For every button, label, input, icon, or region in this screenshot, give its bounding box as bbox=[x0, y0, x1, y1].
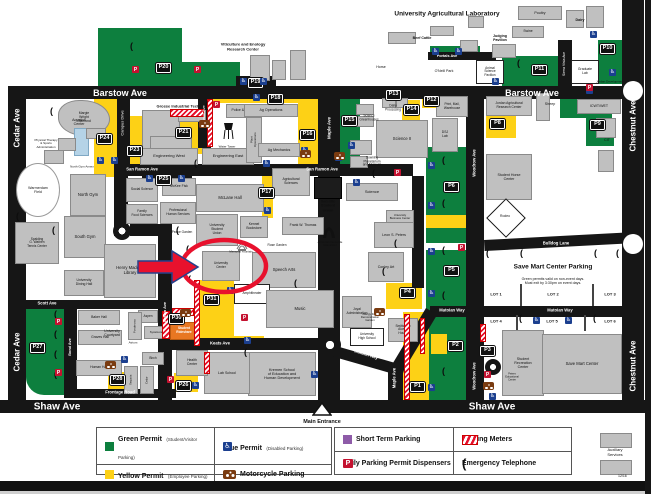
emergency-telephone-icon: ( bbox=[442, 200, 445, 207]
label-water-tower: Water Tower bbox=[219, 145, 236, 148]
label-beef-cattle: Beef Cattle bbox=[413, 36, 432, 40]
roundabout bbox=[319, 334, 341, 356]
lot-badge-P28: P28 bbox=[110, 375, 125, 385]
label-san-ramon-ave: San Ramon Ave bbox=[306, 168, 338, 173]
disabled-parking-icon: ♿ bbox=[428, 202, 435, 209]
lot-badge-P3: P3 bbox=[480, 346, 495, 356]
lot-badge-P15: P15 bbox=[342, 116, 357, 126]
building-family-food-sciences: Family Food Sciences bbox=[126, 204, 158, 224]
permit-dispenser-icon: P bbox=[241, 314, 248, 321]
emergency-telephone-icon: ( bbox=[593, 315, 596, 322]
emergency-telephone-icon: ( bbox=[442, 292, 445, 299]
building-print-mail-warehouse: Print, Mail, Warehouse bbox=[436, 96, 468, 117]
lot-divider bbox=[516, 315, 518, 331]
legend-label: Short Term Parking bbox=[356, 436, 420, 443]
emergency-telephone-icon: ( bbox=[176, 227, 179, 234]
motorcycle-icon bbox=[223, 470, 236, 479]
entrance-triangle-icon bbox=[312, 402, 332, 421]
building-music: Music bbox=[266, 290, 334, 328]
building-south-gym: South Gym bbox=[64, 216, 106, 258]
lot-badge-P31: P31 bbox=[204, 295, 219, 305]
building-dsj-lab: DSJ Lab bbox=[432, 118, 458, 152]
emergency-telephone-icon: ( bbox=[186, 246, 189, 253]
emergency-telephone-icon: ( bbox=[594, 250, 597, 257]
lot-area-p20-upper bbox=[98, 28, 182, 62]
label-matoian-way: Matoian Way bbox=[547, 309, 572, 314]
label-science-greenhouses: Science Greenhouses bbox=[359, 114, 378, 121]
building-science-ii: Science II bbox=[376, 120, 428, 158]
disabled-parking-icon: ♿ bbox=[121, 356, 128, 363]
disabled-parking-icon: ♿ bbox=[244, 337, 251, 344]
building-henry-madden-library: Henry Madden Library bbox=[104, 244, 156, 298]
label-woodrow-ave: Woodrow Ave bbox=[473, 362, 478, 390]
fountain-icon bbox=[236, 240, 248, 258]
label-peace-garden: Peace Garden bbox=[172, 231, 193, 235]
street-loop-stub bbox=[130, 224, 164, 236]
label-campus-drive: Campus Drive bbox=[121, 110, 126, 135]
label-satellite-student-union: Satellite Student Union bbox=[321, 199, 336, 212]
building-amphitheater: Amphitheater bbox=[234, 284, 270, 304]
lot-badge-P2: P2 bbox=[448, 341, 463, 351]
emergency-telephone-icon: ( bbox=[194, 160, 197, 167]
building-lab-school: Lab School bbox=[204, 352, 250, 394]
label-lot-5: LOT 5 bbox=[546, 320, 557, 325]
label-lot-2: LOT 2 bbox=[547, 293, 558, 298]
disabled-parking-icon: ♿ bbox=[432, 48, 439, 55]
watertower-icon bbox=[222, 122, 235, 145]
label-rose-garden: Rose Garden bbox=[268, 244, 287, 248]
disabled-parking-icon: ♿ bbox=[565, 317, 572, 324]
permit-dispenser-icon: P bbox=[394, 169, 401, 176]
lot-badge-P20: P20 bbox=[156, 63, 171, 73]
legend-label: Emergency Telephone bbox=[462, 460, 536, 467]
label-bulldog-lane: Bulldog Lane bbox=[543, 242, 570, 247]
parking-meters-stripe bbox=[170, 109, 204, 117]
lot-badge-P6: P6 bbox=[444, 182, 459, 192]
auxiliary-services-building bbox=[600, 433, 632, 448]
roundabout-circle bbox=[623, 81, 643, 101]
lot-badge-P10: P10 bbox=[600, 44, 615, 54]
label-shaw-ave: Shaw Ave bbox=[34, 401, 81, 413]
disabled-parking-icon: ♿ bbox=[97, 157, 104, 164]
building-ponderosa: Ponderosa bbox=[128, 312, 142, 340]
yellow-permit-swatch bbox=[105, 470, 114, 479]
emergency-telephone-icon: ( bbox=[517, 60, 520, 67]
parking-meters-icon bbox=[462, 435, 478, 445]
legend-daily-dispensers: P Daily Parking Permit Dispensers bbox=[335, 451, 453, 474]
emergency-telephone-icon: ( bbox=[52, 227, 55, 234]
label-sierra-vista-ave: Sierra Vista Ave bbox=[563, 52, 567, 76]
permit-dispenser-icon: P bbox=[55, 318, 62, 325]
label-physical-therapy-sports-administration: Physical Therapy & Sports Administration bbox=[35, 139, 58, 149]
lot-badge-P18: P18 bbox=[268, 94, 283, 104]
emergency-telephone-icon: ( bbox=[16, 213, 19, 220]
disabled-parking-icon: ♿ bbox=[455, 48, 462, 55]
building-baker-hall: Baker Hall bbox=[78, 310, 120, 325]
emergency-telephone-icon: ( bbox=[442, 157, 445, 164]
emergency-telephone-icon: ( bbox=[130, 43, 133, 50]
motorcycle-parking-icon bbox=[180, 309, 191, 317]
building-ag-mechanics: Ag Mechanics bbox=[258, 143, 300, 157]
legend-label: Yellow Permit bbox=[118, 473, 164, 480]
lot-badge-P23: P23 bbox=[127, 146, 142, 156]
label-scott-ave: Scott Ave bbox=[37, 302, 56, 307]
lot-badge-P24: P24 bbox=[97, 134, 112, 144]
label-bond-ave: Bond Ave bbox=[68, 338, 72, 355]
label-barstow-ave: Barstow Ave bbox=[93, 88, 147, 98]
emergency-telephone-icon: ( bbox=[520, 250, 523, 257]
building-graduate-lab: Graduate Lab bbox=[571, 60, 599, 84]
emergency-telephone-icon: ( bbox=[294, 280, 297, 287]
label-sheep: Sheep bbox=[545, 102, 555, 106]
emergency-telephone-icon: ( bbox=[519, 315, 522, 322]
building bbox=[430, 26, 454, 36]
building bbox=[492, 44, 516, 58]
lot-badge-P21: P21 bbox=[176, 128, 191, 138]
legend-green-permit: Green Permit (Student/Visitor Parking) bbox=[97, 428, 214, 464]
label-lot-6: LOT 6 bbox=[604, 320, 615, 325]
label-matoian-way: Matoian Way bbox=[439, 309, 464, 314]
label-viticulture-and-enology-research-center: Viticulture and Enology Research Center bbox=[221, 42, 266, 51]
disabled-parking-icon: ♿ bbox=[348, 142, 355, 149]
lot-badge-P27: P27 bbox=[30, 343, 45, 353]
disabled-parking-icon: ♿ bbox=[263, 160, 270, 167]
building-ag-operations: Ag Operations bbox=[244, 104, 298, 117]
label-san-ramon-ave: San Ramon Ave bbox=[126, 168, 158, 173]
building-poultry: Poultry bbox=[518, 6, 562, 20]
motorcycle-parking-icon bbox=[199, 120, 210, 128]
emergency-telephone-icon: ( bbox=[462, 460, 466, 467]
building-save-mart-center: Save Mart Center bbox=[542, 334, 622, 394]
lot-badge-P17: P17 bbox=[259, 188, 274, 198]
emergency-telephone-icon: ( bbox=[442, 247, 445, 254]
building-north-gym: North Gym bbox=[70, 174, 106, 216]
legend-parking-meters: Parking Meters bbox=[453, 428, 571, 451]
building-university-dining-hall: University Dining Hall bbox=[64, 270, 104, 296]
label-judging-pavilion: Judging Pavilion bbox=[493, 34, 507, 42]
emergency-telephone-icon: ( bbox=[54, 331, 57, 338]
permit-dispenser-icon: P bbox=[194, 66, 201, 73]
label-barton-ave: Barton Ave bbox=[163, 302, 167, 322]
disabled-parking-icon: ♿ bbox=[240, 78, 247, 85]
disabled-parking-icon: ♿ bbox=[264, 207, 271, 214]
label-chestnut-ave: Chestnut Ave bbox=[628, 341, 637, 392]
permit-dispenser-icon: P bbox=[458, 244, 465, 251]
lot-area-column-band-3 bbox=[431, 334, 447, 354]
building-university-high-school: University High School bbox=[350, 328, 384, 346]
building-swine: Swine bbox=[512, 26, 544, 38]
building-speech-arts: Speech Arts bbox=[252, 252, 316, 288]
label-downing-planetarium-and-museum: Downing Planetarium and Museum bbox=[363, 156, 381, 167]
permit-dispenser-icon: P bbox=[586, 84, 593, 91]
emergency-telephone-icon: ( bbox=[442, 368, 445, 375]
label-chestnut-ave: Chestnut Ave bbox=[628, 101, 637, 152]
label-jordan-development: Jordan Development bbox=[596, 80, 624, 83]
building-student-recreation-center: Student Recreation Center bbox=[502, 330, 544, 396]
label-dairy-processing: Dairy Processing bbox=[385, 104, 401, 111]
building-kremen-school-of-education-and-human-devel: Kremen School of Education and Human Dev… bbox=[248, 352, 316, 396]
legend-emergency-telephone: ( Emergency Telephone bbox=[453, 451, 571, 474]
disabled-parking-icon: ♿ bbox=[609, 69, 616, 76]
motorcycle-parking-icon bbox=[300, 150, 311, 158]
disabled-parking-icon: ♿ bbox=[146, 175, 153, 182]
disabled-parking-icon: ♿ bbox=[353, 179, 360, 186]
label-frontage-road: Frontage Road bbox=[105, 391, 135, 396]
short-term-swatch bbox=[343, 435, 352, 444]
emergency-telephone-icon: ( bbox=[616, 250, 619, 257]
bottom-bar bbox=[0, 481, 651, 491]
legend-short-term: Short Term Parking bbox=[335, 428, 453, 451]
building-professional-human-services: Professional Human Services bbox=[160, 202, 196, 224]
label-maple-ave: Maple Ave bbox=[326, 117, 331, 139]
building-jordan-agricultural-research-center: Jordan Agricultural Research Center bbox=[486, 96, 532, 116]
legend-blue-permit: ♿ Blue Permit (Disabled Parking) bbox=[214, 428, 331, 464]
legend-box-other: Short Term Parking Parking Meters P Dail… bbox=[334, 427, 572, 475]
auxiliary-services-building-2 bbox=[600, 460, 632, 475]
dispenser-icon: P bbox=[343, 459, 353, 468]
motorcycle-parking-icon bbox=[105, 361, 116, 369]
building bbox=[272, 60, 286, 80]
label-lot-1: LOT 1 bbox=[490, 293, 501, 298]
lot-badge-P14: P14 bbox=[404, 105, 419, 115]
lot-badge-P5: P5 bbox=[444, 266, 459, 276]
label-rodeo: Rodeo bbox=[500, 215, 510, 219]
emergency-telephone-icon: ( bbox=[54, 311, 57, 318]
permit-dispenser-icon: P bbox=[167, 376, 174, 383]
lot-badge-P26: P26 bbox=[176, 381, 191, 391]
building-animal-science-pavilion: Animal Science Pavilion bbox=[476, 60, 504, 84]
lot-badge-P13: P13 bbox=[386, 90, 401, 100]
building-university-center: University Center bbox=[202, 251, 240, 281]
label-green-permits-valid-on-non-event-days-must: Green permits valid on non-event days. M… bbox=[522, 277, 585, 285]
label-university-agricultural-laboratory: University Agricultural Laboratory bbox=[394, 10, 499, 17]
parking-meters-stripe bbox=[420, 318, 425, 354]
permit-dispenser-icon: P bbox=[213, 101, 220, 108]
legend-sublabel: (Employee Parking) bbox=[168, 474, 208, 479]
disabled-parking-icon: ♿ bbox=[428, 162, 435, 169]
lot-badge-P25: P25 bbox=[156, 175, 171, 185]
motorcycle-parking-icon bbox=[374, 308, 385, 316]
auxiliary-services-label: Auxiliary Services bbox=[600, 448, 630, 457]
disabled-parking-icon: ♿ bbox=[223, 442, 232, 451]
building-warmerdam-field: Warmerdam Field bbox=[16, 163, 60, 217]
permit-dispenser-icon: P bbox=[55, 369, 62, 376]
emergency-telephone-icon: ( bbox=[205, 102, 208, 109]
building bbox=[314, 177, 342, 199]
map-date: 12/16 bbox=[618, 474, 627, 478]
building bbox=[460, 40, 478, 52]
disabled-parking-icon: ♿ bbox=[428, 248, 435, 255]
building-kennel-bookstore: Kennel Bookstore bbox=[240, 216, 268, 238]
disabled-parking-icon: ♿ bbox=[178, 175, 185, 182]
label-grosse-industrial-tech: Grosse Industrial Tech bbox=[156, 105, 199, 110]
building-engineering-west: Engineering West bbox=[140, 148, 198, 165]
label-shaw-ave: Shaw Ave bbox=[469, 401, 516, 413]
building-agricultural-sciences: Agricultural Sciences bbox=[272, 168, 310, 196]
disabled-parking-icon: ♿ bbox=[260, 78, 267, 85]
roundabout-circle bbox=[623, 234, 643, 254]
disabled-parking-icon: ♿ bbox=[590, 31, 597, 38]
motorcycle-parking-icon bbox=[483, 382, 494, 390]
lot-divider bbox=[520, 284, 522, 306]
lot-divider bbox=[584, 315, 586, 331]
label-lot-4: LOT 4 bbox=[490, 320, 501, 325]
legend-box-permits: Green Permit (Student/Visitor Parking) ♿… bbox=[96, 427, 332, 475]
building-frank-w-thomas: Frank W. Thomas bbox=[282, 217, 324, 235]
label-barstow-ave: Barstow Ave bbox=[505, 88, 559, 98]
emergency-telephone-icon: ( bbox=[244, 349, 247, 356]
label-peters-educational-center: Peters Educational Center bbox=[505, 374, 519, 383]
label-north-gym-annex: North Gym Annex bbox=[70, 165, 94, 168]
emergency-telephone-icon: ( bbox=[486, 250, 489, 257]
emergency-telephone-icon: ( bbox=[54, 351, 57, 358]
building-smittcamp-alumni-house: Smittcamp Alumni House bbox=[388, 318, 418, 342]
disabled-parking-icon: ♿ bbox=[492, 78, 499, 85]
building bbox=[598, 150, 614, 172]
campus-map: Margie Wright DiamondNorth GymSouth GymS… bbox=[0, 0, 651, 494]
parking-meters-stripe bbox=[204, 352, 210, 374]
disabled-parking-icon: ♿ bbox=[227, 287, 234, 294]
legend: FRESNO STATE Discovery. Diversity. Disti… bbox=[0, 418, 651, 481]
lot-badge-P4: P4 bbox=[400, 288, 415, 298]
building-student-horse-center: Student Horse Center bbox=[486, 154, 532, 200]
label-cit: CIT bbox=[604, 138, 610, 142]
lot-badge-P1: P1 bbox=[410, 382, 425, 392]
lot-divider bbox=[592, 284, 594, 306]
emergency-telephone-icon: ( bbox=[188, 276, 191, 283]
building bbox=[290, 50, 306, 80]
legend-label: Motorcycle Parking bbox=[240, 471, 305, 478]
building-mclane-hall: McLane Hall bbox=[196, 184, 264, 212]
legend-label: Daily Parking Permit Dispensers bbox=[343, 460, 451, 467]
parking-meters-stripe bbox=[480, 324, 486, 342]
lot-badge-P9: P9 bbox=[590, 120, 605, 130]
label-atrium: Atrium bbox=[129, 341, 138, 344]
building-conley-art: Conley Art bbox=[368, 252, 404, 282]
permit-dispenser-icon: P bbox=[132, 66, 139, 73]
label-woodrow-ave: Woodrow Ave bbox=[473, 149, 478, 177]
building-social-science: Social Science bbox=[126, 178, 158, 202]
disabled-parking-icon: ♿ bbox=[311, 371, 318, 378]
parking-meters-stripe bbox=[194, 280, 200, 346]
legend-label: Green Permit bbox=[118, 436, 162, 443]
lot-badge-P11: P11 bbox=[532, 65, 547, 75]
disabled-parking-icon: ♿ bbox=[533, 317, 540, 324]
label-o-neill-park: O'Neill Park bbox=[435, 69, 454, 73]
roundabout bbox=[113, 222, 131, 240]
motorcycle-parking-icon bbox=[334, 152, 345, 160]
building-icwt-wet: ICWT/WET bbox=[577, 99, 621, 114]
label-cedar-ave: Cedar Ave bbox=[12, 333, 21, 372]
building bbox=[44, 150, 64, 164]
building-cedar: Cedar bbox=[140, 366, 154, 394]
label-save-mart-center-parking: Save Mart Center Parking bbox=[514, 263, 593, 270]
building bbox=[586, 6, 604, 28]
emergency-telephone-icon: ( bbox=[382, 268, 385, 275]
label-cedar-ave: Cedar Ave bbox=[12, 109, 21, 148]
label-horse: Horse bbox=[376, 65, 386, 69]
legend-sublabel: (Disabled Parking) bbox=[266, 446, 303, 451]
disabled-parking-icon: ♿ bbox=[428, 384, 435, 391]
emergency-telephone-icon: ( bbox=[394, 240, 397, 247]
disabled-parking-icon: ♿ bbox=[253, 94, 260, 101]
disabled-parking-icon: ♿ bbox=[111, 157, 118, 164]
label-university-courtyard: University Courtyard bbox=[104, 329, 120, 337]
lot-badge-P8: P8 bbox=[490, 119, 505, 129]
green-permit-swatch bbox=[105, 442, 114, 451]
label-maple-ave: Maple Ave bbox=[393, 368, 398, 388]
building-university-student-union: University Student Union bbox=[196, 214, 238, 246]
lot-area-column-band-1 bbox=[426, 215, 468, 228]
disabled-parking-icon: ♿ bbox=[428, 290, 435, 297]
label-dairy: Dairy bbox=[576, 18, 585, 22]
emergency-telephone-icon: ( bbox=[50, 108, 53, 115]
arch-monument-icon bbox=[322, 226, 336, 244]
lot-badge-P12: P12 bbox=[424, 96, 439, 106]
street-right-frame bbox=[645, 0, 651, 494]
label-lot-3: LOT 3 bbox=[604, 293, 615, 298]
lot-badge-P16: P16 bbox=[300, 130, 315, 140]
permit-dispenser-icon: P bbox=[484, 371, 491, 378]
building bbox=[468, 16, 484, 28]
label-aquatics-center: Aquatics Center bbox=[72, 118, 86, 126]
disabled-parking-icon: ♿ bbox=[192, 382, 199, 389]
emergency-telephone-icon: ( bbox=[372, 170, 375, 177]
disabled-parking-icon: ♿ bbox=[489, 393, 496, 400]
building-birch: Birch bbox=[142, 352, 164, 365]
label-keats-ave: Keats Ave bbox=[210, 342, 230, 347]
